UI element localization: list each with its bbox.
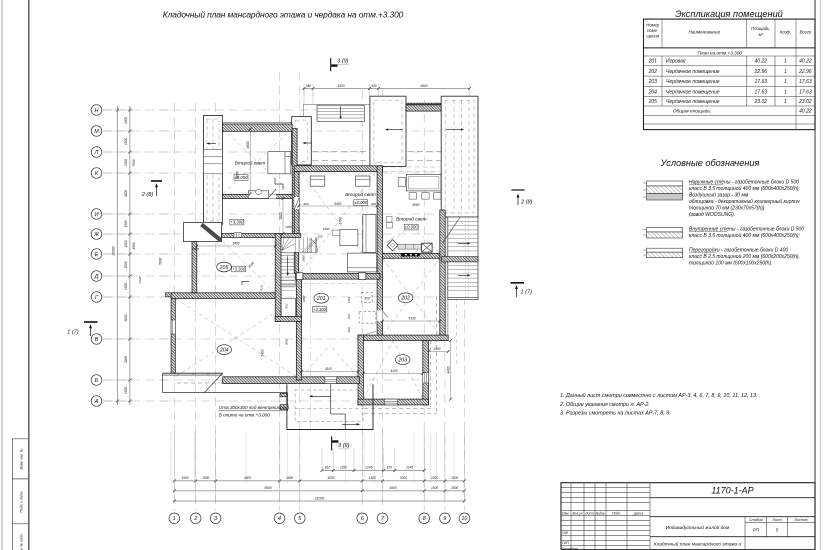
svg-text:1 (7): 1 (7) [521, 290, 533, 296]
svg-text:1500: 1500 [431, 486, 438, 490]
svg-text:1500: 1500 [124, 220, 128, 227]
svg-text:ГАП: ГАП [562, 531, 569, 535]
svg-text:5400: 5400 [261, 349, 265, 356]
svg-text:540: 540 [347, 327, 351, 332]
svg-text:В плите на отм.+3.000: В плите на отм.+3.000 [219, 412, 270, 417]
svg-text:17.63: 17.63 [755, 79, 768, 85]
svg-text:м²: м² [759, 32, 764, 37]
svg-text:22.96: 22.96 [754, 69, 768, 75]
svg-text:+3.300: +3.300 [230, 220, 244, 225]
svg-text:И: И [95, 212, 99, 218]
svg-text:6: 6 [361, 516, 364, 522]
svg-text:650: 650 [306, 84, 312, 88]
svg-text:±0.000: ±0.000 [354, 200, 367, 205]
svg-text:23.02: 23.02 [798, 99, 812, 105]
svg-text:5000: 5000 [192, 247, 199, 251]
svg-text:Листов: Листов [793, 518, 807, 522]
svg-text:400: 400 [371, 202, 376, 206]
svg-text:В: В [95, 337, 99, 343]
svg-text:Наименование: Наименование [688, 30, 720, 35]
svg-text:17.63: 17.63 [799, 89, 812, 95]
svg-text:Чердачное помещение: Чердачное помещение [666, 69, 720, 75]
svg-text:Н: Н [95, 108, 99, 114]
svg-text:ГИП: ГИП [562, 541, 569, 545]
svg-text:810: 810 [325, 466, 331, 470]
svg-text:204: 204 [648, 89, 658, 95]
svg-text:класс В 2.5 толщиной 200 мм (6: класс В 2.5 толщиной 200 мм (600х200х250… [689, 253, 800, 260]
svg-text:4400: 4400 [446, 366, 450, 373]
svg-text:Л: Л [94, 150, 99, 156]
svg-text:А: А [94, 399, 99, 405]
svg-text:1500: 1500 [124, 387, 128, 394]
svg-text:Игровая: Игровая [666, 59, 686, 65]
svg-text:Инв. № подл.: Инв. № подл. [20, 533, 24, 550]
svg-text:2: 2 [193, 516, 197, 522]
svg-text:4100: 4100 [390, 369, 397, 373]
svg-text:1500: 1500 [433, 347, 440, 351]
svg-text:Отв.300х300 под вентрешетки: Отв.300х300 под вентрешетки [219, 405, 289, 410]
svg-text:5600: 5600 [159, 258, 163, 265]
svg-text:1500: 1500 [451, 486, 458, 490]
svg-text:1800: 1800 [302, 295, 306, 302]
svg-text:+3.300: +3.300 [313, 307, 327, 312]
svg-text:810: 810 [387, 466, 393, 470]
svg-text:4100: 4100 [325, 367, 332, 371]
svg-text:Чердачное помещение: Чердачное помещение [666, 79, 720, 85]
svg-text:1: 1 [173, 516, 176, 522]
svg-text:2145: 2145 [405, 466, 413, 470]
svg-text:4500: 4500 [389, 486, 396, 490]
svg-text:2. Общие указания смотри л. АР: 2. Общие указания смотри л. АР-2. [559, 402, 650, 408]
svg-text:Стадия: Стадия [749, 518, 763, 522]
svg-text:4500: 4500 [244, 476, 251, 480]
svg-text:+3.300: +3.300 [232, 267, 246, 272]
svg-text:Экспликация помещений: Экспликация помещений [675, 9, 783, 19]
svg-text:(завод WOOSUNG).: (завод WOOSUNG). [689, 212, 735, 218]
svg-text:1: 1 [784, 69, 787, 75]
svg-text:205: 205 [219, 265, 229, 271]
svg-text:3. Разрезы смотреть на листах: 3. Разрезы смотреть на листах АР-7, 8, 9… [560, 411, 671, 417]
svg-text:40.22: 40.22 [799, 109, 812, 115]
svg-text:201: 201 [648, 59, 658, 65]
svg-text:17.63: 17.63 [755, 89, 768, 95]
svg-text:3000: 3000 [400, 476, 407, 480]
svg-text:1: 1 [784, 79, 787, 85]
svg-text:202: 202 [400, 296, 410, 302]
svg-text:2145: 2145 [364, 466, 372, 470]
svg-text:1000: 1000 [285, 225, 292, 229]
svg-text:2120: 2120 [138, 276, 142, 284]
svg-text:Площадь,: Площадь, [751, 26, 770, 31]
svg-text:201: 201 [316, 296, 326, 302]
svg-text:1500: 1500 [124, 283, 128, 290]
svg-text:8: 8 [423, 516, 426, 522]
svg-text:Индивидуальный жилой дом: Индивидуальный жилой дом [666, 524, 730, 531]
svg-text:Второй свет: Второй свет [345, 191, 376, 198]
svg-text:203: 203 [397, 358, 407, 364]
svg-text:1500: 1500 [124, 261, 128, 268]
svg-text:6600: 6600 [420, 84, 427, 88]
svg-text:205: 205 [648, 99, 658, 105]
svg-text:17.63: 17.63 [799, 79, 812, 85]
svg-text:3 (9): 3 (9) [338, 443, 350, 449]
svg-text:1000: 1000 [323, 227, 330, 231]
svg-text:РП: РП [753, 528, 760, 533]
svg-text:Кладочный план мансардного эта: Кладочный план мансардного этажа и [654, 540, 742, 547]
svg-text:3000: 3000 [124, 314, 128, 321]
svg-text:Д: Д [94, 274, 99, 280]
svg-text:1500: 1500 [181, 476, 188, 480]
svg-text:4800: 4800 [246, 141, 250, 148]
svg-text:3000: 3000 [285, 338, 289, 345]
svg-text:40.22: 40.22 [799, 59, 812, 65]
svg-text:Кол.уч: Кол.уч [572, 511, 582, 515]
svg-text:1500: 1500 [124, 159, 128, 166]
svg-text:1: 1 [784, 89, 787, 95]
svg-text:класс В 3.5 толщиной 400 мм (6: класс В 3.5 толщиной 400 мм (600х400х250… [689, 232, 801, 239]
svg-text:1: 1 [784, 59, 787, 65]
svg-text:1500: 1500 [451, 476, 458, 480]
svg-text:1500: 1500 [124, 138, 128, 145]
svg-text:1500: 1500 [202, 476, 209, 480]
svg-text:3000: 3000 [124, 190, 128, 197]
svg-text:1500: 1500 [369, 476, 376, 480]
svg-text:1510: 1510 [340, 466, 347, 470]
svg-text:№док.: №док. [596, 511, 606, 515]
svg-text:Е: Е [95, 252, 99, 258]
svg-text:1170-1-АР: 1170-1-АР [711, 485, 753, 495]
svg-text:Подп. и дата: Подп. и дата [20, 491, 24, 512]
svg-text:Коэф.: Коэф. [780, 30, 791, 35]
svg-text:2 (8): 2 (8) [520, 200, 533, 206]
svg-text:Второй свет: Второй свет [396, 216, 427, 223]
svg-text:Общая площадь:: Общая площадь: [673, 109, 712, 115]
svg-text:1 (7): 1 (7) [67, 329, 79, 335]
svg-text:Изм.: Изм. [562, 511, 569, 515]
svg-text:400: 400 [303, 202, 308, 206]
svg-text:Воздушный зазор - 30 мм: Воздушный зазор - 30 мм [689, 192, 749, 199]
svg-text:6500: 6500 [264, 486, 271, 490]
svg-text:2600: 2600 [302, 255, 306, 263]
svg-text:3 (9): 3 (9) [337, 59, 349, 65]
svg-text:облицовка - декоративный клинк: облицовка - декоративный клинкерный кирп… [689, 198, 800, 205]
svg-text:20000: 20000 [112, 246, 116, 256]
svg-text:4100: 4100 [408, 317, 415, 321]
svg-text:5600: 5600 [412, 203, 419, 207]
svg-text:класс В 3.5 толщиной 400 мм (6: класс В 3.5 толщиной 400 мм (600х400х250… [689, 185, 801, 192]
svg-text:3000: 3000 [124, 356, 128, 363]
svg-text:3: 3 [214, 516, 217, 522]
svg-text:Чердачное помещение: Чердачное помещение [666, 89, 720, 95]
svg-text:5400: 5400 [334, 202, 341, 206]
svg-text:Дата: Дата [633, 511, 643, 515]
svg-text:Условные обозначения: Условные обозначения [660, 158, 760, 168]
svg-text:203: 203 [648, 79, 658, 85]
svg-text:Номер: Номер [646, 23, 660, 28]
svg-text:500: 500 [364, 296, 370, 300]
svg-text:Ж: Ж [93, 232, 100, 238]
svg-text:1700: 1700 [339, 217, 343, 224]
svg-text:1500: 1500 [431, 476, 438, 480]
svg-text:5400: 5400 [232, 242, 239, 246]
svg-text:250: 250 [316, 235, 322, 239]
svg-text:204: 204 [219, 348, 229, 354]
svg-text:1. Данный лист смотри совместн: 1. Данный лист смотри совместно с листом… [560, 392, 757, 399]
svg-text:9: 9 [443, 516, 446, 522]
svg-text:23.02: 23.02 [754, 99, 768, 105]
svg-text:3400: 3400 [279, 212, 283, 219]
svg-text:810: 810 [260, 285, 264, 290]
svg-text:поме-: поме- [647, 28, 659, 33]
svg-text:толщиной 70 мм (230х70х57(h)): толщиной 70 мм (230х70х57(h)) [689, 205, 765, 212]
svg-text:650: 650 [371, 84, 377, 88]
svg-text:1500: 1500 [124, 240, 128, 247]
svg-text:Б: Б [95, 378, 99, 384]
svg-text:1500: 1500 [286, 476, 293, 480]
svg-text:810: 810 [347, 314, 351, 319]
svg-text:10: 10 [461, 516, 467, 522]
svg-text:Взам. инв. №: Взам. инв. № [20, 448, 24, 469]
svg-text:Кладочный план мансардного эта: Кладочный план мансардного этажа и черда… [163, 10, 404, 20]
svg-text:М: М [94, 129, 99, 135]
svg-text:Подп.: Подп. [612, 511, 621, 515]
svg-text:щения: щения [646, 34, 660, 39]
svg-text:202: 202 [648, 69, 658, 75]
svg-text:1: 1 [784, 99, 787, 105]
svg-text:22.96: 22.96 [798, 69, 812, 75]
svg-text:1110: 1110 [347, 297, 351, 304]
svg-text:4100: 4100 [338, 84, 345, 88]
svg-text:40.22: 40.22 [755, 59, 768, 65]
svg-text:3600: 3600 [236, 171, 240, 178]
svg-text:Лист: Лист [771, 518, 781, 522]
svg-text:7500: 7500 [132, 159, 136, 166]
svg-text:Лист: Лист [584, 511, 594, 515]
svg-text:±0.000: ±0.000 [405, 225, 418, 230]
svg-text:Всего: Всего [800, 30, 812, 35]
svg-text:2 (8): 2 (8) [141, 192, 154, 198]
svg-text:21000: 21000 [314, 496, 325, 500]
svg-text:Чердачное помещение: Чердачное помещение [666, 99, 720, 105]
svg-text:1500: 1500 [124, 117, 128, 124]
svg-text:4500: 4500 [327, 476, 334, 480]
svg-text:План на отм.+3.300: План на отм.+3.300 [698, 50, 743, 55]
svg-text:толщиной 100 мм (600х100х250(h: толщиной 100 мм (600х100х250(h). [689, 260, 773, 267]
svg-text:900: 900 [285, 303, 289, 308]
svg-text:4500: 4500 [132, 242, 136, 249]
svg-text:4: 4 [278, 516, 281, 522]
